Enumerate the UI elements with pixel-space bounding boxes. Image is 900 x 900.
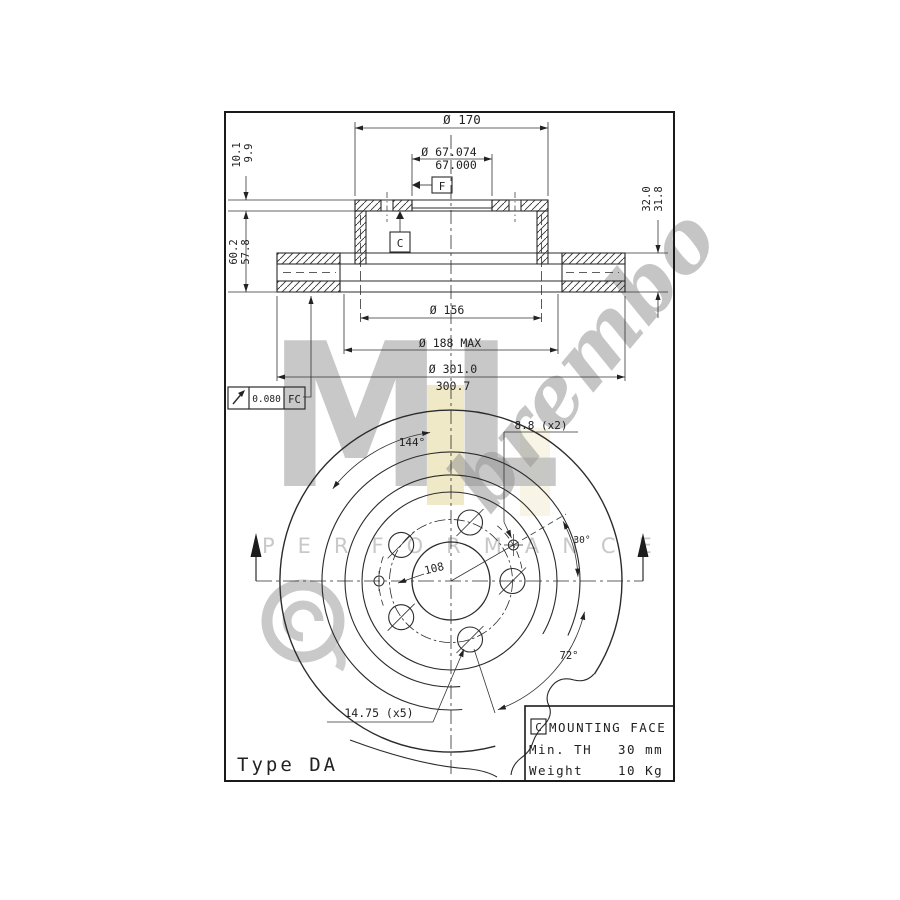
- info-min-th-label: Min. TH: [529, 742, 592, 757]
- main-holes-label: 14.75 (x5): [344, 706, 413, 720]
- dim-inner-max-diameter: Ø 188 MAX: [419, 336, 481, 350]
- info-datum-label: C: [535, 721, 542, 734]
- type-label: Type DA: [237, 754, 338, 776]
- info-weight-label: Weight: [529, 763, 583, 778]
- dimension-texts: Ø 170 Ø 67.074 67.000 F C 10.1 9.9 60.2 …: [228, 112, 665, 720]
- dim-bore-upper: Ø 67.074: [421, 145, 476, 159]
- small-holes-label: 8.8 (x2): [515, 419, 568, 432]
- runout-symbol-icon: [233, 390, 245, 404]
- angle-144-label: 144°: [399, 436, 426, 449]
- dim-hat-diameter: Ø 170: [443, 112, 481, 127]
- dim-height-upper: 60.2: [228, 239, 240, 264]
- fcf-value: 0.080: [252, 394, 281, 405]
- datum-c-label: C: [397, 237, 404, 250]
- section-arrow-right-icon: [638, 533, 649, 557]
- dim-thickness-upper: 32.0: [641, 186, 653, 211]
- datum-f-label: F: [439, 180, 446, 193]
- angle-30-label: 30°: [573, 535, 590, 546]
- bolt-circle-label: 108: [423, 560, 445, 577]
- dim-thickness-lower: 31.8: [653, 186, 665, 211]
- info-weight-value: 10 Kg: [618, 763, 663, 778]
- dim-flange-lower: 9.9: [243, 144, 255, 163]
- fcf-datum: FC: [288, 394, 301, 406]
- dim-bore-lower: 67.000: [435, 158, 477, 172]
- dim-flange-upper: 10.1: [231, 142, 243, 167]
- info-box-texts: C MOUNTING FACE Min. TH 30 mm Weight 10 …: [529, 720, 666, 778]
- info-min-th-value: 30 mm: [618, 742, 663, 757]
- dim-outer-upper: Ø 301.0: [429, 362, 478, 376]
- technical-drawing: Ø 170 Ø 67.074 67.000 F C 10.1 9.9 60.2 …: [0, 0, 900, 900]
- dim-outer-lower: 300.7: [436, 379, 471, 393]
- section-arrow-left-icon: [251, 533, 262, 557]
- dim-mount-diameter: Ø 156: [430, 303, 465, 317]
- angle-72-label: 72°: [560, 650, 579, 662]
- datum-f: [412, 177, 452, 193]
- drawing-border: [225, 112, 674, 781]
- drawing-page: ML brembo PERFORMANCE: [0, 0, 900, 900]
- info-title: MOUNTING FACE: [549, 720, 666, 735]
- dim-height-lower: 57.8: [240, 239, 252, 264]
